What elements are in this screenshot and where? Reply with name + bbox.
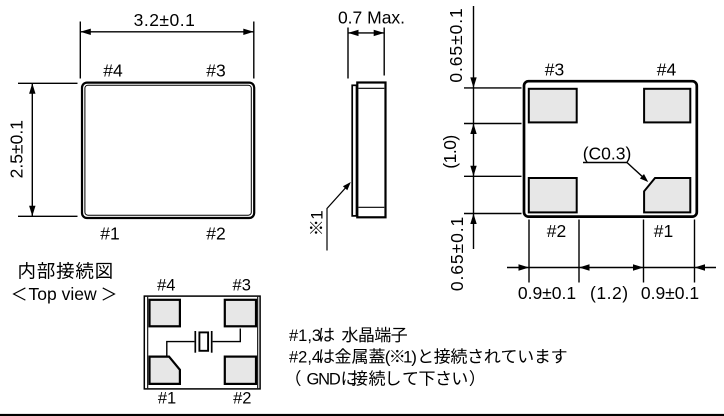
- svg-text:0.7 Max.: 0.7 Max.: [338, 8, 405, 28]
- svg-text:0.9±0.1: 0.9±0.1: [641, 283, 699, 303]
- svg-text:#2: #2: [206, 224, 225, 244]
- svg-text:Top view: Top view: [29, 284, 97, 304]
- svg-text:#2,4: #2,4: [289, 349, 321, 367]
- svg-text:#1,3: #1,3: [289, 327, 321, 345]
- svg-text:#1: #1: [158, 389, 176, 407]
- svg-text:#2: #2: [233, 389, 251, 407]
- svg-text:1: 1: [308, 210, 327, 219]
- svg-text:(C0.3): (C0.3): [583, 144, 632, 164]
- svg-text:(: (: [385, 348, 391, 367]
- svg-text:#2: #2: [547, 221, 566, 241]
- svg-text:#3: #3: [233, 276, 251, 294]
- svg-text:#1: #1: [100, 224, 119, 244]
- svg-text:3.2±0.1: 3.2±0.1: [134, 10, 196, 30]
- svg-text:#4: #4: [657, 60, 677, 80]
- svg-text:#4: #4: [157, 276, 175, 294]
- svg-text:#4: #4: [103, 61, 123, 81]
- svg-text:): ): [411, 348, 417, 367]
- svg-text:#3: #3: [545, 60, 564, 80]
- svg-text:#1: #1: [654, 221, 673, 241]
- svg-text:GND: GND: [307, 371, 341, 389]
- svg-text:0.65±0.1: 0.65±0.1: [446, 7, 466, 82]
- svg-text:0.65±0.1: 0.65±0.1: [447, 216, 467, 291]
- svg-text:2.5±0.1: 2.5±0.1: [6, 120, 26, 178]
- svg-text:0.9±0.1: 0.9±0.1: [518, 283, 576, 303]
- svg-text:#3: #3: [206, 61, 225, 81]
- svg-text:(1.2): (1.2): [590, 283, 628, 303]
- svg-text:(1.0): (1.0): [440, 135, 460, 168]
